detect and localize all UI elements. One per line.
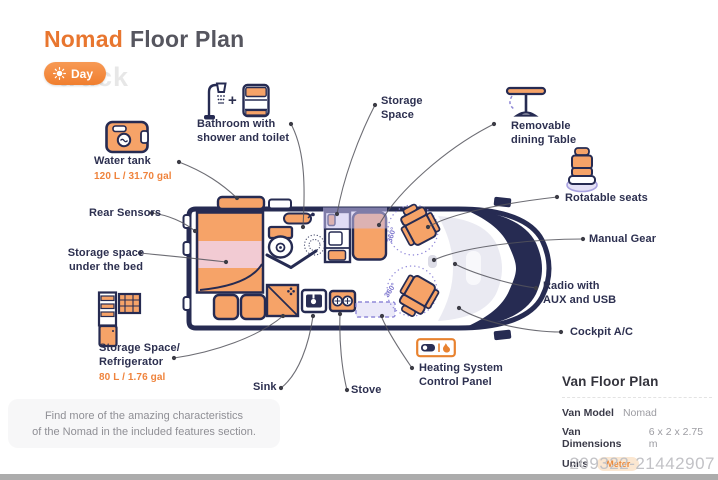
bathroom-counter [284,213,315,224]
label-rotatable-seats: Rotatable seats [565,191,648,205]
label-dining-table: Removable dining Table [511,119,576,147]
label-bathroom: Bathroom with shower and toilet [197,117,289,145]
sink-unit [302,290,326,312]
refrigerator-icon [96,290,148,348]
water-tank-roof-box [218,197,264,209]
label-storage-space: Storage Space [381,94,423,122]
label-storage-refrigerator: Storage Space/ Refrigerator 80 L / 1.76 … [99,341,180,385]
heating-control-panel-icon [416,338,456,358]
roof-vent [269,200,291,209]
page-title-accent: Nomad [44,26,123,52]
footer-watermark: 209322-21442907 [569,454,715,474]
label-stove: Stove [351,383,381,397]
label-manual-gear: Manual Gear [589,232,656,246]
footer-bar [0,474,718,480]
plus-sign: + [228,92,237,109]
label-radio: Radio with AUX and USB [543,279,616,307]
van-dimensions-row: Van Dimensions 6 x 2 x 2.75 m [562,426,712,450]
day-toggle-label: Day [71,67,93,81]
mirror-bottom [494,330,512,341]
dining-table-icon [500,84,550,122]
label-rear-sensors: Rear Sensors [89,206,161,220]
info-panel-title: Van Floor Plan [562,374,712,389]
label-water-tank: Water tank 120 L / 31.70 gal [94,154,172,184]
toilet-icon [241,82,271,120]
under-bed-storage-highlight [199,241,262,268]
heating-panel-highlight [356,302,395,317]
day-mode-toggle[interactable]: Day [44,62,106,85]
nomad-floorplan-page: truck NomadFloor Plan Day [0,0,718,480]
water-tank-capacity: 120 L / 31.70 gal [94,170,172,184]
info-panel-divider [562,397,712,398]
refrigerator-capacity: 80 L / 1.76 gal [99,371,180,385]
label-storage-under-bed: Storage space under the bed [60,246,152,274]
van-model-row: Van Model Nomad [562,407,712,419]
label-sink: Sink [253,380,277,394]
toilet [269,227,292,258]
rotatable-seat-icon [563,146,601,194]
sun-icon [53,67,66,80]
shower-icon [203,80,229,122]
water-tank-icon [104,118,152,156]
features-note: Find more of the amazing characteristics… [8,399,280,448]
fridge-cabinet [267,285,298,316]
stove-unit [330,291,355,311]
page-title: NomadFloor Plan [44,26,244,53]
gear-boot [428,255,437,268]
label-heating-system: Heating System Control Panel [419,361,503,389]
page-title-rest: Floor Plan [130,26,244,52]
bed [197,213,263,293]
label-cockpit-ac: Cockpit A/C [570,325,633,339]
